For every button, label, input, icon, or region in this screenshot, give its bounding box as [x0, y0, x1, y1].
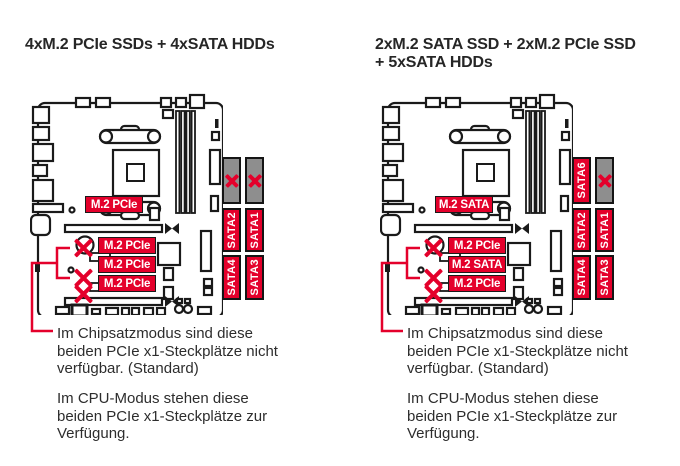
note-line: Im Chipsatzmodus sind diese — [407, 325, 628, 343]
note-line: beiden PCIe x1-Steckplätze zur — [407, 408, 617, 426]
note-line: beiden PCIe x1-Steckplätze zur — [57, 408, 267, 426]
m2-slot-label: M.2 PCIe — [98, 256, 156, 273]
panel-right: 2xM.2 SATA SSD + 2xM.2 PCIe SSD + 5xSATA… — [350, 0, 680, 466]
sata-port-disabled — [595, 157, 614, 204]
sata-port-label: SATA6 — [576, 162, 588, 198]
panel-left: 4xM.2 PCIe SSDs + 4xSATA HDDs M.2 PCIe M… — [0, 0, 340, 466]
x-mark-icon — [424, 284, 443, 303]
sata-port: SATA4 — [222, 255, 241, 300]
sata-port-label: SATA2 — [576, 212, 588, 248]
sata-port: SATA1 — [245, 208, 264, 252]
note-paragraph: Im CPU-Modus stehen diese beiden PCIe x1… — [407, 390, 617, 443]
x-mark-icon — [225, 174, 239, 188]
sata-port: SATA3 — [245, 255, 264, 300]
note-line: Verfügung. — [407, 425, 617, 443]
sata-port: SATA6 — [572, 157, 591, 204]
note-paragraph: Im CPU-Modus stehen diese beiden PCIe x1… — [57, 390, 267, 443]
m2-slot-label: M.2 SATA — [448, 256, 506, 273]
m2-slot-label: M.2 PCIe — [98, 237, 156, 254]
sata-port-disabled — [245, 157, 264, 204]
config-title: 2xM.2 SATA SSD + 2xM.2 PCIe SSD + 5xSATA… — [375, 36, 636, 72]
note-paragraph: Im Chipsatzmodus sind diese beiden PCIe … — [57, 325, 278, 378]
x-mark-icon — [424, 238, 443, 257]
m2-slot-label: M.2 SATA — [435, 196, 493, 213]
note-line: Verfügung. — [57, 425, 267, 443]
x-mark-icon — [598, 174, 612, 188]
sata-port-label: SATA4 — [576, 259, 588, 295]
note-line: verfügbar. (Standard) — [57, 360, 278, 378]
x-mark-icon — [74, 238, 93, 257]
note-line: Im CPU-Modus stehen diese — [57, 390, 267, 408]
note-line: Im Chipsatzmodus sind diese — [57, 325, 278, 343]
note-line: verfügbar. (Standard) — [407, 360, 628, 378]
sata-port-label: SATA2 — [226, 212, 238, 248]
x-mark-icon — [248, 174, 262, 188]
sata-port-label: SATA3 — [599, 259, 611, 295]
x-mark-icon — [74, 284, 93, 303]
manual-page: 4xM.2 PCIe SSDs + 4xSATA HDDs M.2 PCIe M… — [0, 0, 680, 466]
m2-slot-label: M.2 PCIe — [98, 275, 156, 292]
m2-slot-label: M.2 PCIe — [448, 275, 506, 292]
sata-port: SATA1 — [595, 208, 614, 252]
sata-port-label: SATA1 — [249, 212, 261, 248]
sata-port: SATA2 — [572, 208, 591, 252]
note-line: Im CPU-Modus stehen diese — [407, 390, 617, 408]
sata-port: SATA2 — [222, 208, 241, 252]
note-line: beiden PCIe x1-Steckplätze nicht — [407, 343, 628, 361]
sata-port-label: SATA1 — [599, 212, 611, 248]
sata-port: SATA4 — [572, 255, 591, 300]
m2-slot-label: M.2 PCIe — [448, 237, 506, 254]
note-line: beiden PCIe x1-Steckplätze nicht — [57, 343, 278, 361]
m2-slot-label: M.2 PCIe — [85, 196, 143, 213]
sata-port: SATA3 — [595, 255, 614, 300]
config-title-line: 4xM.2 PCIe SSDs + 4xSATA HDDs — [25, 36, 275, 54]
config-title-line: + 5xSATA HDDs — [375, 54, 636, 72]
config-title: 4xM.2 PCIe SSDs + 4xSATA HDDs — [25, 36, 275, 54]
sata-port-disabled — [222, 157, 241, 204]
note-paragraph: Im Chipsatzmodus sind diese beiden PCIe … — [407, 325, 628, 378]
sata-port-label: SATA3 — [249, 259, 261, 295]
config-title-line: 2xM.2 SATA SSD + 2xM.2 PCIe SSD — [375, 36, 636, 54]
sata-port-label: SATA4 — [226, 259, 238, 295]
